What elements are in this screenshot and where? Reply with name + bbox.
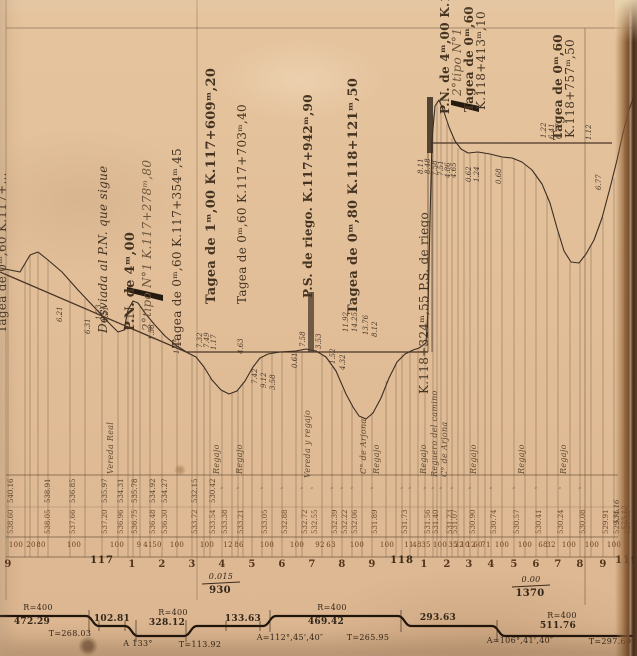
alignment-label: A=112°,45',40″ — [257, 634, 324, 642]
alignment-label: 511.76 — [540, 622, 576, 631]
alignment-label: R=400 — [317, 604, 347, 612]
alignment-label: T=113.92 — [179, 641, 221, 649]
alignment-label: 133.63 — [225, 615, 261, 624]
alignment-label: 293.63 — [420, 614, 456, 623]
alignment-label: A 133° — [123, 640, 152, 648]
alignment-labels: R=400472.29T=268.03102.81R=400328.12A 13… — [0, 0, 637, 656]
alignment-label: 469.42 — [308, 618, 344, 627]
alignment-label: 102.81 — [94, 615, 130, 624]
page-edge-top-light — [615, 0, 637, 42]
alignment-label: 472.29 — [14, 618, 50, 627]
alignment-label: R=400 — [547, 612, 577, 620]
alignment-label: T=265.95 — [347, 634, 389, 642]
alignment-label: A=106°,41',40″ — [487, 637, 554, 645]
alignment-label: T=268.03 — [49, 630, 91, 638]
alignment-label: 328.12 — [149, 619, 185, 628]
page-edge-shadow — [615, 0, 637, 656]
alignment-label: R=400 — [23, 604, 53, 612]
profile-drawing-sheet: Tagea de 0ᵐ,60 K.117+…Desviada al P.N. q… — [0, 0, 637, 656]
alignment-label: R=400 — [158, 609, 188, 617]
